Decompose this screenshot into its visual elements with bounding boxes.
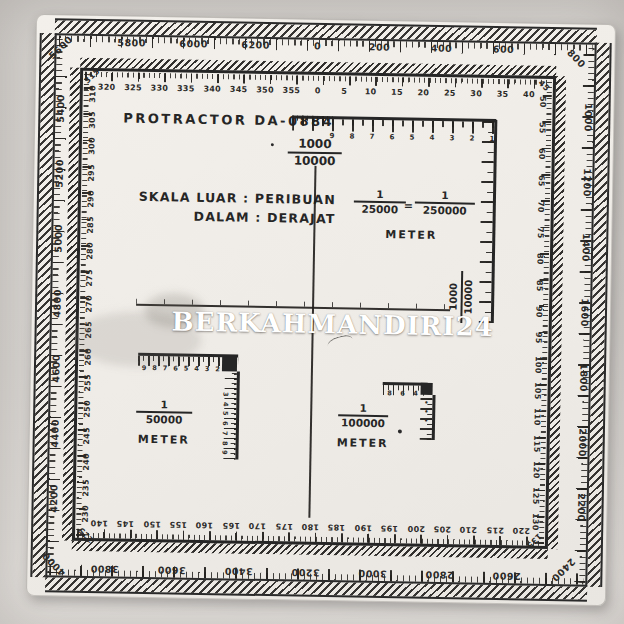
outer-label-bottom: 2800 xyxy=(425,569,454,580)
inner-label-right: 120 xyxy=(532,461,541,479)
ruler-50000-h-digit: 3 xyxy=(205,365,210,373)
inner-label-bottom: 190 xyxy=(354,523,372,532)
ruler-25000-digit: 3 xyxy=(450,134,455,142)
inner-label-right: 100 xyxy=(533,356,542,374)
outer-label-bottom: 3800 xyxy=(90,564,119,575)
ruler-50000-v-digit: 3 xyxy=(221,392,229,397)
inner-label-right: 105 xyxy=(533,382,542,400)
outer-label-left: 4600 xyxy=(50,354,61,383)
inner-label-left: 285 xyxy=(86,216,95,234)
f25000-num: 1 xyxy=(352,189,408,201)
inner-label-right: 60 xyxy=(537,148,546,160)
ruler-25000-digit: 9 xyxy=(330,132,335,140)
ruler-50000-corner xyxy=(222,356,237,371)
outer-label-right: 1400 xyxy=(580,233,591,262)
inner-label-left: 230 xyxy=(81,505,90,523)
meter-label-100000: METER xyxy=(332,436,394,450)
outer-label-bottom: 3400 xyxy=(224,566,253,577)
inner-label-top: 5 xyxy=(341,87,347,96)
inner-label-left: 295 xyxy=(87,164,96,182)
outer-label-top: 5800 xyxy=(117,37,146,48)
inner-label-right: 65 xyxy=(537,174,546,186)
inner-label-top: 350 xyxy=(256,85,274,94)
inner-label-top: 340 xyxy=(203,84,221,93)
outer-label-right: 2000 xyxy=(577,428,588,457)
ruler-25000-digit: 6 xyxy=(390,133,395,141)
inner-label-left: 310 xyxy=(88,85,97,103)
inner-label-bottom: 210 xyxy=(460,525,478,534)
inner-label-right: 70 xyxy=(536,201,545,213)
inner-label-right: 80 xyxy=(535,253,544,265)
ruler-100000-h-digit: 6 xyxy=(400,389,405,397)
f100000-den: 100000 xyxy=(336,417,390,429)
outer-label-top: 400 xyxy=(431,42,453,53)
outer-label-left: 4200 xyxy=(48,484,59,513)
outer-label-bottom: 2600 xyxy=(492,571,521,582)
inner-label-bottom: 195 xyxy=(381,524,399,533)
inner-label-bottom: 200 xyxy=(407,524,425,533)
ruler-25000-vertical-arm xyxy=(477,120,498,323)
inner-label-right: 50 xyxy=(538,95,547,107)
outer-label-right: 1800 xyxy=(578,363,589,392)
outer-label-right: 1000 xyxy=(583,103,594,132)
inner-label-bottom: 160 xyxy=(196,520,214,529)
inner-label-bottom: 170 xyxy=(249,521,267,530)
inner-label-bottom: 140 xyxy=(90,519,108,528)
ruler-100000-v-mark: • xyxy=(424,417,428,425)
outer-label-right: 2200 xyxy=(576,493,587,522)
ruler-50000-v-digit: 8 xyxy=(221,441,229,446)
fraction-50000: 1 50000 xyxy=(134,399,194,426)
ruler-25000-fine-segment xyxy=(292,115,332,128)
ruler-100000-h-digit: 8 xyxy=(387,389,392,397)
outer-label-top: 600 xyxy=(493,43,515,54)
inner-label-bottom: 180 xyxy=(301,522,319,531)
ruler-50000-v-digit: 4 xyxy=(221,402,229,407)
outer-label-bottom: 3000 xyxy=(358,568,387,579)
inner-label-bottom: 215 xyxy=(486,525,504,534)
inner-label-left: 250 xyxy=(83,400,92,418)
outer-label-top: 200 xyxy=(369,41,391,52)
inner-label-bottom: 175 xyxy=(275,522,293,531)
inner-label-bottom: 145 xyxy=(117,519,135,528)
ruler-50000-h-digit: 2 xyxy=(215,365,220,373)
inner-label-bottom: 150 xyxy=(143,519,161,528)
inner-label-left: 235 xyxy=(81,479,90,497)
outer-label-left: 4400 xyxy=(49,419,60,448)
outer-label-left: 5400 xyxy=(55,94,66,123)
inner-label-top: 330 xyxy=(151,83,169,92)
inner-label-top: 325 xyxy=(124,83,142,92)
ruler-50000-h-digit: 4 xyxy=(194,365,199,373)
outer-label-left: 5200 xyxy=(54,159,65,188)
inner-label-top: 25 xyxy=(444,89,456,98)
protractor-sheet: 5800600062000200400600100012001400160018… xyxy=(26,14,616,606)
product-photo: 5800600062000200400600100012001400160018… xyxy=(0,0,624,624)
outer-label-right: 1200 xyxy=(582,168,593,197)
scale-1000-fraction: 1000 10000 xyxy=(285,137,344,167)
outer-label-top: 6000 xyxy=(179,38,208,49)
inner-label-bottom: 155 xyxy=(169,520,187,529)
inner-label-left: 305 xyxy=(88,111,97,129)
inner-label-right: 130 xyxy=(531,513,540,531)
inner-label-right: 115 xyxy=(532,434,541,452)
meter-label-50000: METER xyxy=(132,433,196,447)
inner-label-top: 30 xyxy=(470,89,482,98)
ruler-25000-digit: 5 xyxy=(410,134,415,142)
inner-label-top: 40 xyxy=(523,90,535,99)
ruler-100000-v-mark: • xyxy=(424,399,428,407)
ruler-50000-h-digit: 5 xyxy=(184,365,189,373)
ruler-100000-h-digit: 4 xyxy=(413,390,418,398)
inner-label-top: 0 xyxy=(315,86,321,95)
fraction-250000: 1 250000 xyxy=(413,190,477,217)
inner-label-bottom: 165 xyxy=(222,521,240,530)
outer-label-left: 5000 xyxy=(52,224,63,253)
ruler-50000-h-digit: 7 xyxy=(163,364,168,372)
inner-label-left: 280 xyxy=(85,242,94,260)
inner-label-right: 125 xyxy=(531,487,540,505)
inner-label-bottom: 205 xyxy=(433,524,451,533)
inner-label-top: 345 xyxy=(230,85,248,94)
ruler-50000-h-digit: 6 xyxy=(173,364,178,372)
legend-line1: SKALA LUAR : PERIBUAN xyxy=(122,187,336,210)
f50000-num: 1 xyxy=(134,399,194,411)
ruler-50000-v-digit: 9 xyxy=(220,450,228,455)
f50000-den: 50000 xyxy=(134,414,194,426)
outer-label-right: 1600 xyxy=(579,298,590,327)
f25000-den: 25000 xyxy=(352,204,408,216)
inner-label-left: 290 xyxy=(86,190,95,208)
inner-label-right: 95 xyxy=(534,332,543,344)
inner-label-left: 245 xyxy=(82,427,91,445)
inner-label-top: 10 xyxy=(365,87,377,96)
inner-label-bottom: 220 xyxy=(512,526,530,535)
outer-label-left: 4800 xyxy=(51,289,62,318)
ruler-100000-v-mark: • xyxy=(424,408,428,416)
f100000-num: 1 xyxy=(336,402,390,414)
ruler-25000-digit: 2 xyxy=(470,135,475,143)
inner-label-right: 75 xyxy=(536,227,545,239)
inner-label-left: 255 xyxy=(83,374,92,392)
ruler-50000-v-digit: 7 xyxy=(221,431,229,436)
inner-label-top: 335 xyxy=(177,84,195,93)
inner-label-left: 300 xyxy=(87,137,96,155)
inner-label-right: 85 xyxy=(535,280,544,292)
print-dot xyxy=(398,429,402,433)
ruler-25000-digit: 4 xyxy=(430,134,435,142)
inner-label-bottom: 185 xyxy=(328,523,346,532)
f250000-num: 1 xyxy=(413,190,477,202)
ruler-50000-v-digit: 6 xyxy=(221,421,229,426)
inner-label-right: 55 xyxy=(538,122,547,134)
outer-label-bottom: 3600 xyxy=(157,565,186,576)
outer-label-top: 0 xyxy=(314,40,321,51)
ruler-25000-digit: 7 xyxy=(370,133,375,141)
scale-legend: SKALA LUAR : PERIBUAN DALAM : DERAJAT xyxy=(121,187,336,229)
inner-label-top: 320 xyxy=(98,83,116,92)
print-dot xyxy=(271,143,274,146)
fraction-25000: 1 25000 xyxy=(352,189,408,216)
inner-label-top: 20 xyxy=(417,88,429,97)
inner-label-right: 90 xyxy=(534,306,543,318)
inner-label-top: 355 xyxy=(283,86,301,95)
meter-label-25000: METER xyxy=(371,228,451,242)
inner-label-left: 240 xyxy=(82,453,91,471)
f250000-den: 250000 xyxy=(413,205,477,217)
seller-watermark: BERKAHMANDIRI24 xyxy=(172,306,452,341)
inner-label-left: 270 xyxy=(84,295,93,313)
ruler-25000-digit: 8 xyxy=(350,132,355,140)
inner-label-top: 15 xyxy=(391,88,403,97)
outer-label-top: 6200 xyxy=(241,39,270,50)
fraction-100000: 1 100000 xyxy=(336,402,390,429)
inner-label-right: 110 xyxy=(533,408,542,426)
outer-label-bottom: 3200 xyxy=(291,567,320,578)
ruler-50000-v-digit: 5 xyxy=(221,411,229,416)
inner-label-top: 35 xyxy=(497,90,509,99)
legend-line2: DALAM : DERAJAT xyxy=(121,206,335,229)
ruler-100000-corner xyxy=(421,383,433,395)
scale-1000-numerator: 1000 xyxy=(286,137,344,151)
inner-label-left: 275 xyxy=(85,269,94,287)
